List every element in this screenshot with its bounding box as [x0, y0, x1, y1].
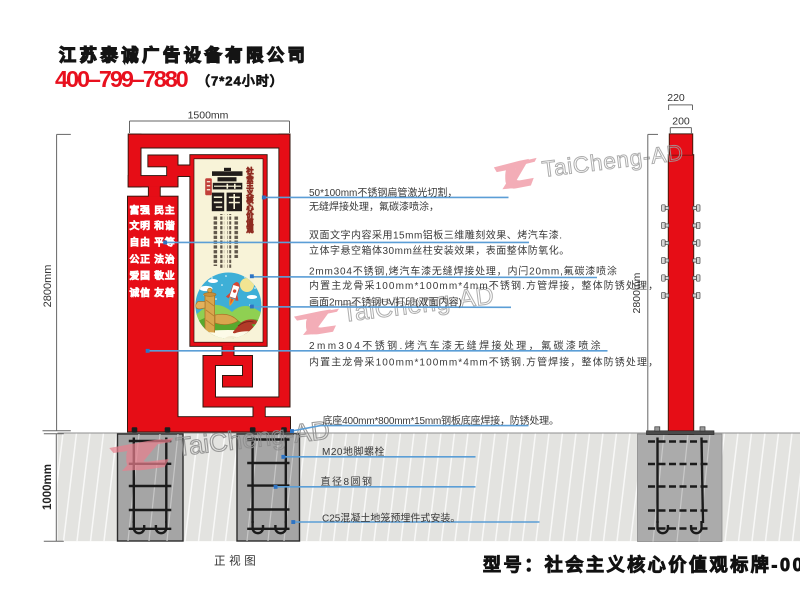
svg-text:（7*24小时）: （7*24小时） — [197, 74, 284, 89]
svg-text:公正 法治: 公正 法治 — [130, 253, 176, 266]
svg-text:立体字悬空箱体30mm丝柱安装效果，表面整体防氧化。: 立体字悬空箱体30mm丝柱安装效果，表面整体防氧化。 — [309, 244, 570, 257]
svg-text:200: 200 — [672, 116, 690, 128]
svg-text:双面文字内容采用15mm铝板三维雕刻效果、烤汽车漆.: 双面文字内容采用15mm铝板三维雕刻效果、烤汽车漆. — [309, 228, 563, 241]
svg-text:无缝焊接处理，氟碳漆喷涂，: 无缝焊接处理，氟碳漆喷涂， — [309, 200, 439, 213]
svg-text:直径8圆钢: 直径8圆钢 — [321, 475, 374, 488]
svg-text:诚信 友善: 诚信 友善 — [130, 286, 176, 299]
svg-text:220: 220 — [667, 92, 685, 104]
svg-text:2mm304不锈钢,烤汽车漆无缝焊接处理，内闩20mm,氟碳: 2mm304不锈钢,烤汽车漆无缝焊接处理，内闩20mm,氟碳漆喷涂 — [309, 265, 618, 278]
svg-text:型号：社会主义核心价值观标牌-0085: 型号：社会主义核心价值观标牌-0085 — [483, 554, 800, 575]
svg-text:画面2mm不锈钢UV打印(双面内容): 画面2mm不锈钢UV打印(双面内容) — [309, 296, 462, 309]
svg-text:爱国 敬业: 爱国 敬业 — [130, 269, 176, 282]
svg-text:50*100mm不锈钢扁管激光切割，: 50*100mm不锈钢扁管激光切割， — [309, 186, 457, 199]
svg-text:400–799–7880: 400–799–7880 — [55, 66, 189, 92]
svg-text:2mm304不锈钢.烤汽车漆无缝焊接处理，氟碳漆喷涂: 2mm304不锈钢.烤汽车漆无缝焊接处理，氟碳漆喷涂 — [309, 339, 603, 352]
svg-text:1500mm: 1500mm — [188, 110, 229, 122]
svg-text:1000mm: 1000mm — [42, 464, 54, 510]
svg-text:江苏泰诚广告设备有限公司: 江苏泰诚广告设备有限公司 — [59, 45, 309, 65]
svg-text:观: 观 — [246, 225, 254, 234]
svg-text:C25混凝土地笼预埋件式安装。: C25混凝土地笼预埋件式安装。 — [322, 511, 460, 524]
svg-text:内置主龙骨采100mm*100mm*4mm不锈钢.方管焊接，: 内置主龙骨采100mm*100mm*4mm不锈钢.方管焊接，整体防锈处理， — [309, 356, 659, 369]
svg-text:正视图: 正视图 — [214, 554, 259, 568]
svg-text:2800mm: 2800mm — [42, 265, 54, 308]
svg-text:2800mm: 2800mm — [631, 272, 643, 313]
svg-text:底座400mm*800mm*15mm钢板底座焊接，防锈处理。: 底座400mm*800mm*15mm钢板底座焊接，防锈处理。 — [323, 414, 559, 427]
svg-text:内置主龙骨采100mm*100mm*4mm不锈钢.方管焊接，: 内置主龙骨采100mm*100mm*4mm不锈钢.方管焊接，整体防锈处理， — [309, 279, 659, 292]
svg-text:富强 民主: 富强 民主 — [130, 204, 176, 217]
svg-text:文明 和谐: 文明 和谐 — [130, 219, 176, 232]
svg-text:M20地脚螺栓: M20地脚螺栓 — [322, 445, 385, 458]
